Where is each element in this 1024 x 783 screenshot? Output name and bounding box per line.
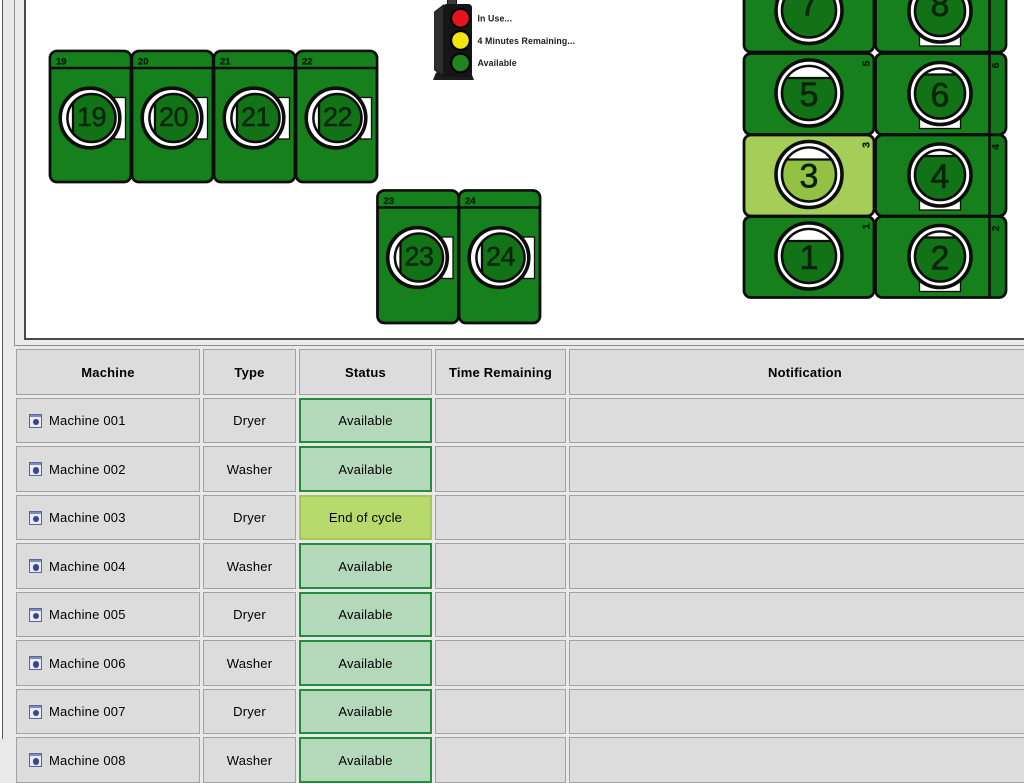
svg-text:6: 6 [990,62,1002,68]
svg-text:Available: Available [478,58,517,68]
svg-text:3: 3 [861,142,873,148]
svg-text:22: 22 [323,102,352,132]
svg-text:19: 19 [77,102,106,132]
svg-text:21: 21 [241,102,270,132]
svg-text:23: 23 [384,196,395,207]
svg-text:20: 20 [159,102,188,132]
svg-text:2: 2 [931,240,950,278]
svg-text:20: 20 [138,57,149,68]
svg-text:4: 4 [990,144,1002,150]
svg-text:24: 24 [486,242,516,272]
svg-text:1: 1 [800,239,819,277]
svg-text:3: 3 [800,158,819,196]
svg-text:24: 24 [465,196,476,207]
svg-text:6: 6 [931,77,950,115]
svg-text:5: 5 [861,60,873,66]
svg-text:22: 22 [302,57,313,68]
svg-text:In Use...: In Use... [478,14,513,24]
svg-text:7: 7 [800,0,819,24]
svg-text:2: 2 [990,225,1002,231]
svg-text:23: 23 [404,242,433,272]
svg-text:1: 1 [861,223,873,229]
svg-text:19: 19 [56,57,67,68]
svg-text:4 Minutes Remaining...: 4 Minutes Remaining... [478,36,576,46]
svg-text:5: 5 [800,76,819,114]
svg-text:8: 8 [931,0,950,24]
svg-text:21: 21 [220,57,231,68]
svg-text:4: 4 [931,158,950,196]
